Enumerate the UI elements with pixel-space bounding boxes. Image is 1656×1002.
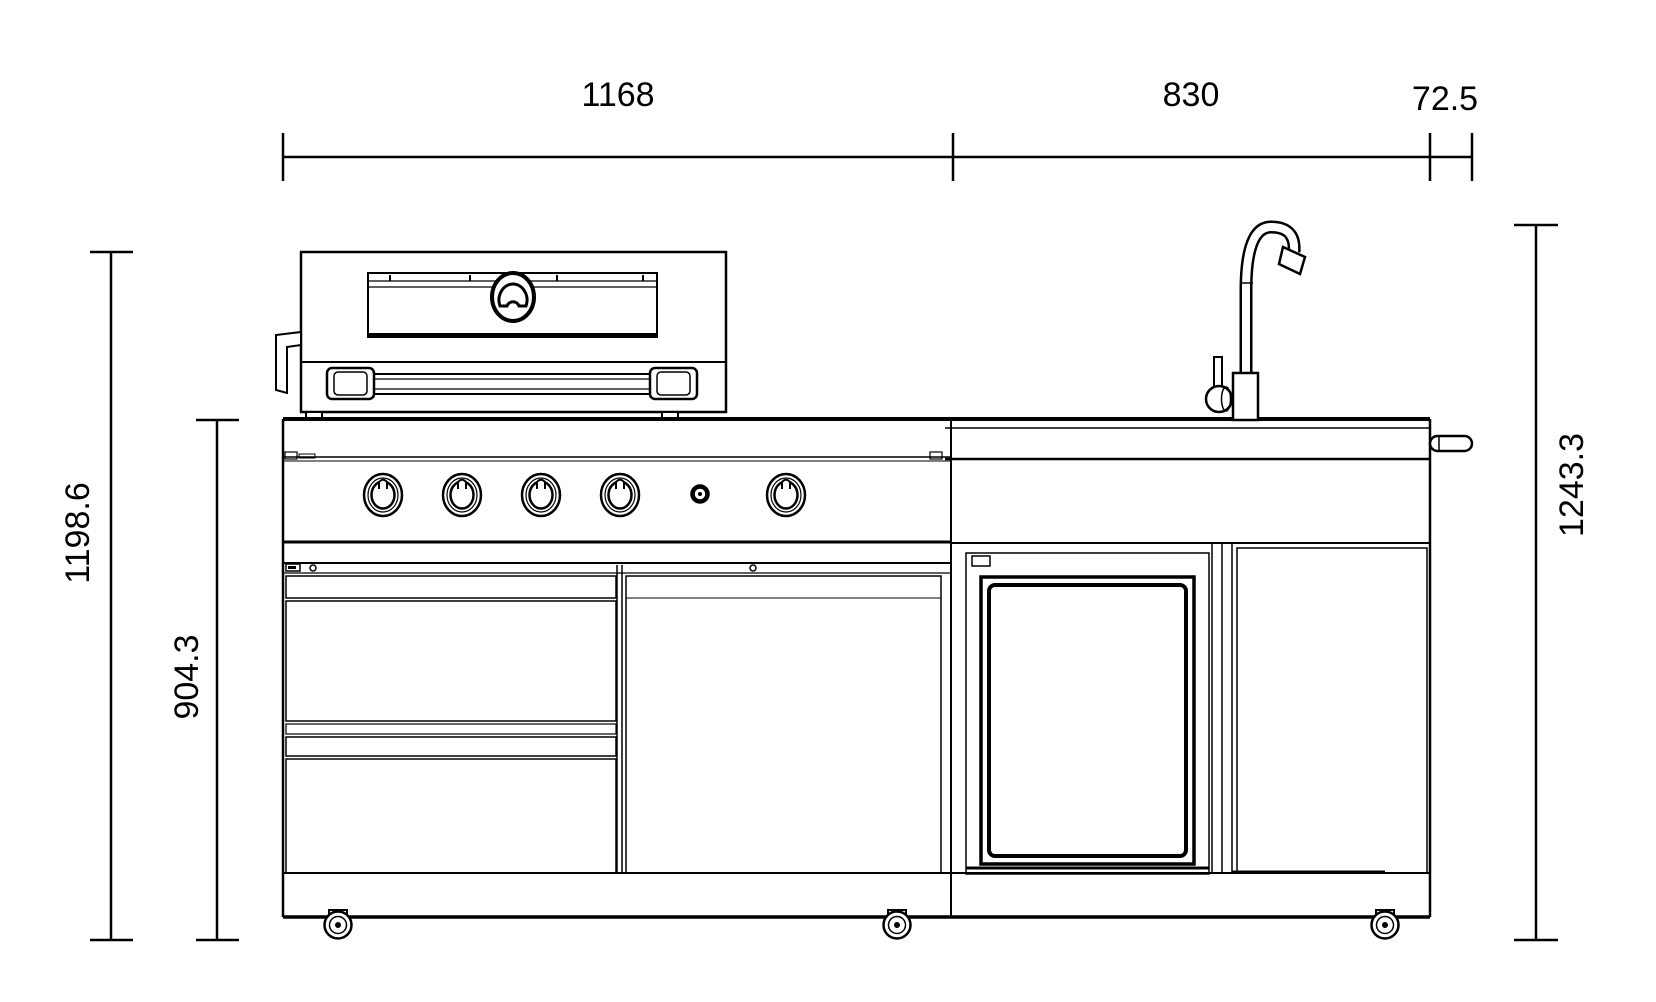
dimension-right-total-height [1514,225,1558,940]
hood-foot [306,412,322,418]
burner-knob [522,474,560,516]
dim-label-sink-module-width: 830 [1131,78,1251,112]
grill-cabinet-door [626,576,941,873]
hood-handle-bar [332,374,694,394]
side-handle [1430,436,1472,451]
cabinet-body [283,419,1430,917]
burner-knob [767,474,805,516]
burner-knob [364,474,402,516]
hinge-mark [285,452,297,459]
hood-side-bracket [276,332,301,393]
hinge-mark [930,452,942,459]
dim-label-grill-module-width: 1168 [558,78,678,112]
fridge-door-glass [989,585,1186,856]
faucet-base [1233,373,1258,420]
grill-hood [276,252,726,418]
caster-wheel [1372,910,1399,939]
technical-drawing-canvas: 1168 830 72.5 1198.6 904.3 1243.3 [0,0,1656,1002]
fridge-door-frame [981,577,1194,864]
grill-module [283,452,950,873]
ignition-button [693,487,708,502]
hood-foot [662,412,678,418]
caster-wheel [325,910,352,939]
screw [750,565,756,571]
drawer-lower [286,759,616,873]
fridge-recess [966,553,1209,874]
latch-detail [288,566,296,569]
outdoor-kitchen-elevation-drawing [0,0,1656,1002]
dimension-top-width [283,133,1472,181]
dim-label-handle-overhang: 72.5 [1387,82,1503,116]
faucet-lever-stem [1214,357,1222,387]
faucet [1206,227,1305,420]
faucet-lever-knob [1206,386,1232,412]
drawer-middle-front [286,737,616,756]
dim-label-hood-height: 1198.6 [61,473,95,593]
sink-module [945,428,1472,874]
drawer-strip [286,724,616,734]
fridge-latch [972,556,990,566]
drawer-top-thin [286,576,616,598]
dimension-left-overall-height [90,252,133,940]
dim-label-total-height: 1243.3 [1555,425,1589,545]
drawer-upper [286,601,616,721]
burner-knob [443,474,481,516]
burner-knob [601,474,639,516]
screw [310,565,316,571]
sink-cabinet-door [1237,548,1427,873]
caster-wheel [884,910,911,939]
dim-label-counter-height: 904.3 [170,627,204,727]
faucet-nozzle [1279,247,1305,274]
